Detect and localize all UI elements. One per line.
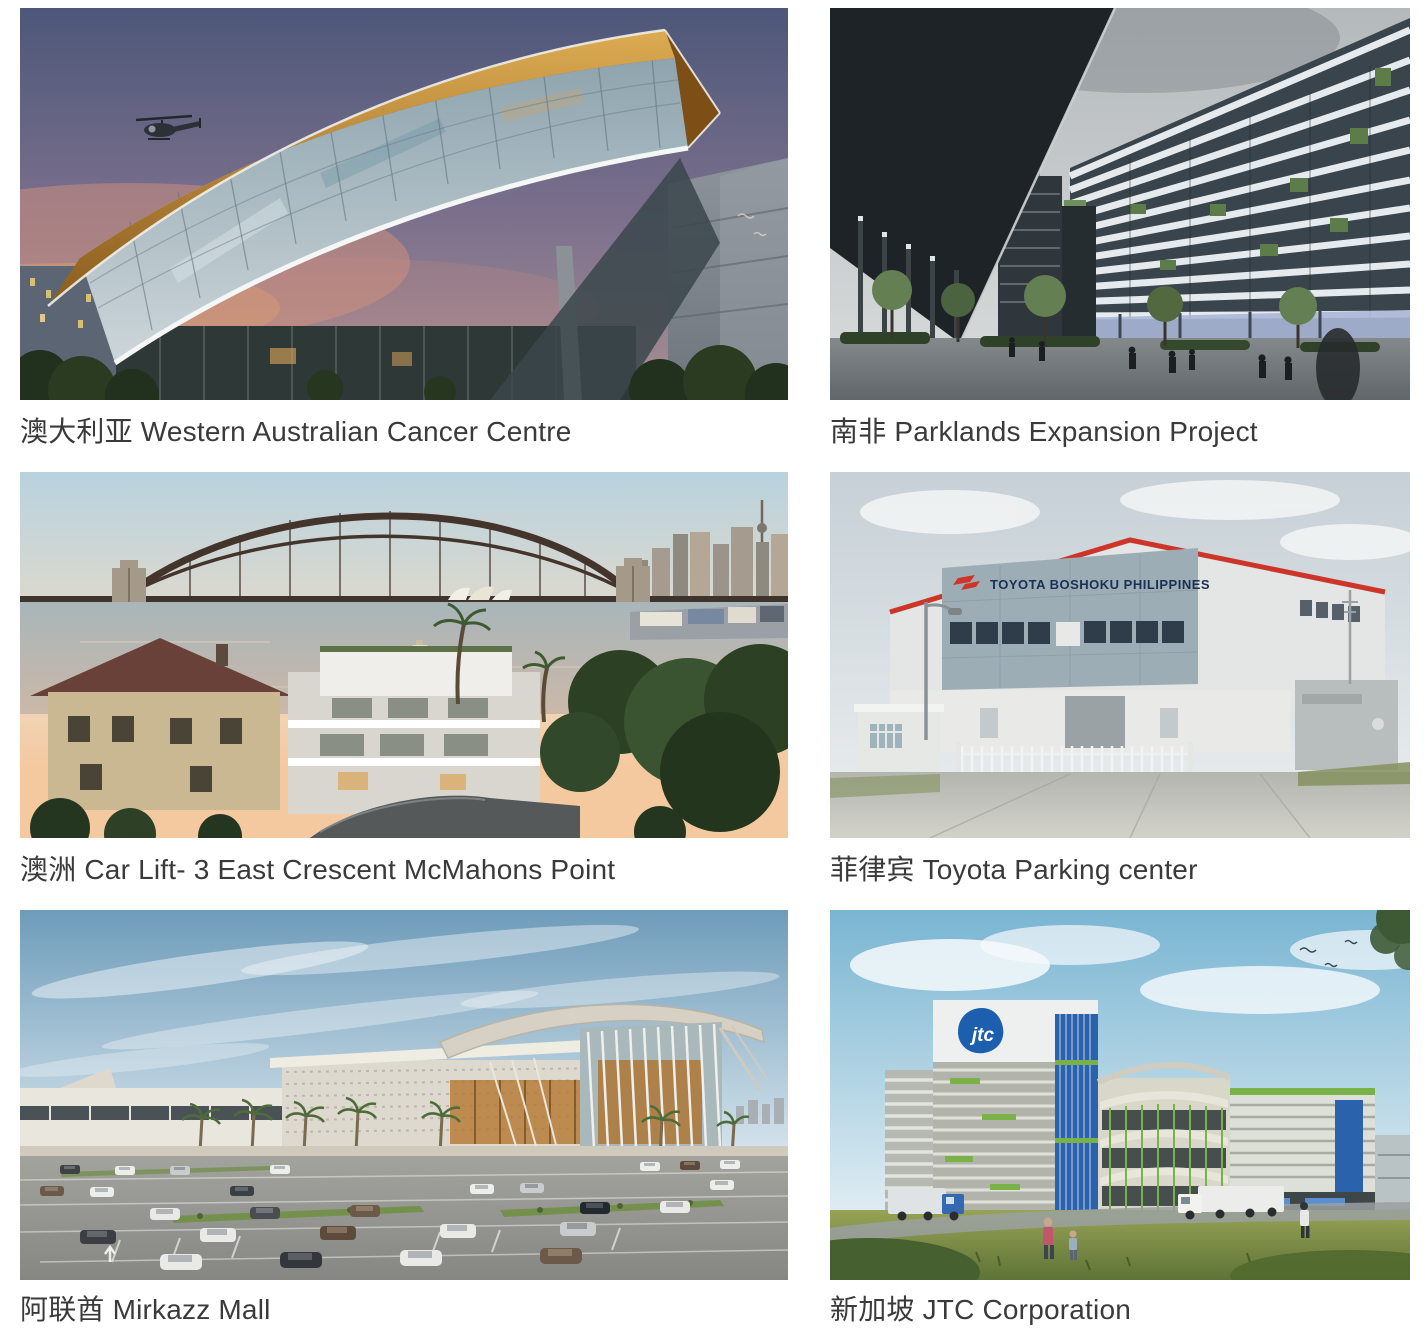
project-card-cancer-centre: 澳大利亚 Western Australian Cancer Centre	[20, 8, 788, 449]
jtc-logo-text: jtc	[969, 1025, 995, 1046]
photo-western-australian-cancer-centre	[20, 8, 788, 400]
caption-toyota: 菲律宾 Toyota Parking center	[830, 852, 1410, 887]
photo-car-lift-mcmahons-point	[20, 472, 788, 838]
caption-cancer-centre: 澳大利亚 Western Australian Cancer Centre	[20, 414, 788, 449]
toyota-sign-text: TOYOTA BOSHOKU PHILIPPINES	[990, 577, 1210, 592]
illustration-cancer-centre	[20, 8, 788, 400]
caption-jtc: 新加坡 JTC Corporation	[830, 1292, 1410, 1327]
illustration-jtc-building: jtc	[830, 910, 1410, 1280]
caption-mcmahons-point: 澳洲 Car Lift- 3 East Crescent McMahons Po…	[20, 852, 788, 887]
photo-jtc-corporation: jtc	[830, 910, 1410, 1280]
photo-parklands-expansion	[830, 8, 1410, 400]
project-card-mcmahons-point: 澳洲 Car Lift- 3 East Crescent McMahons Po…	[20, 472, 788, 887]
project-card-toyota: TOYOTA BOSHOKU PHILIPPINES	[830, 472, 1410, 887]
project-card-mirkazz: 阿联酋 Mirkazz Mall	[20, 910, 788, 1327]
illustration-sydney-harbour	[20, 472, 788, 838]
guard-house	[854, 704, 944, 774]
illustration-mirkazz-mall	[20, 910, 788, 1280]
illustration-parklands	[830, 8, 1410, 400]
project-card-parklands: 南非 Parklands Expansion Project	[830, 8, 1410, 449]
caption-parklands: 南非 Parklands Expansion Project	[830, 414, 1410, 449]
photo-mirkazz-mall	[20, 910, 788, 1280]
illustration-toyota-plant: TOYOTA BOSHOKU PHILIPPINES	[830, 472, 1410, 838]
concrete-yard	[830, 762, 1410, 838]
caption-mirkazz: 阿联酋 Mirkazz Mall	[20, 1292, 788, 1327]
project-card-jtc: jtc	[830, 910, 1410, 1327]
photo-toyota-parking-center: TOYOTA BOSHOKU PHILIPPINES	[830, 472, 1410, 838]
